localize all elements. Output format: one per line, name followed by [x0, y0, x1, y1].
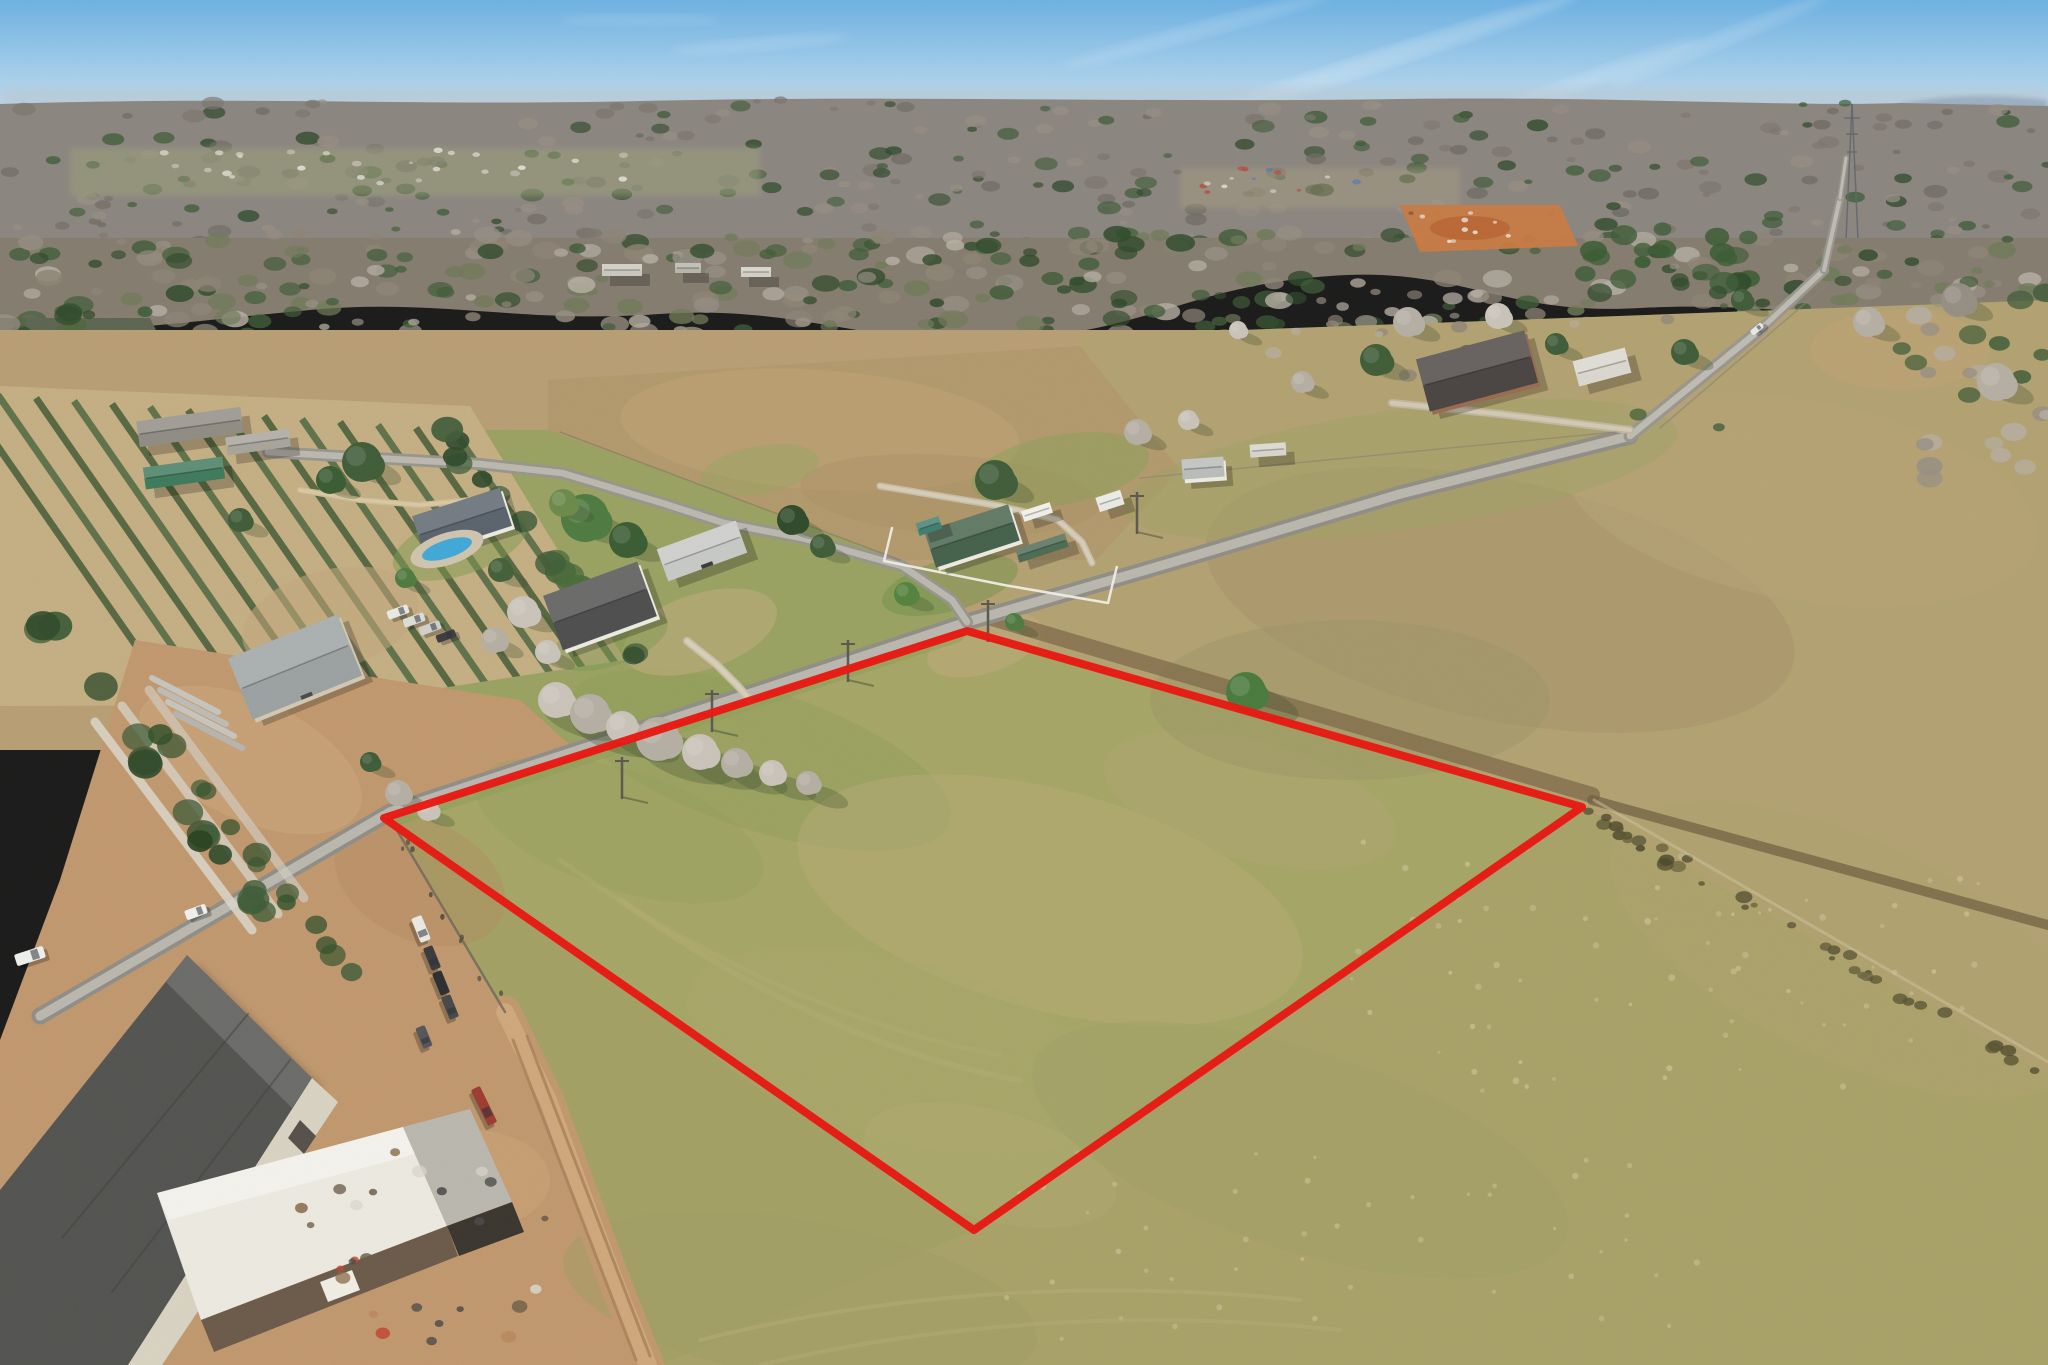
- photo-grain-overlay: [0, 0, 2048, 1365]
- aerial-drone-photo: [0, 0, 2048, 1365]
- aerial-photo-stage: [0, 0, 2048, 1365]
